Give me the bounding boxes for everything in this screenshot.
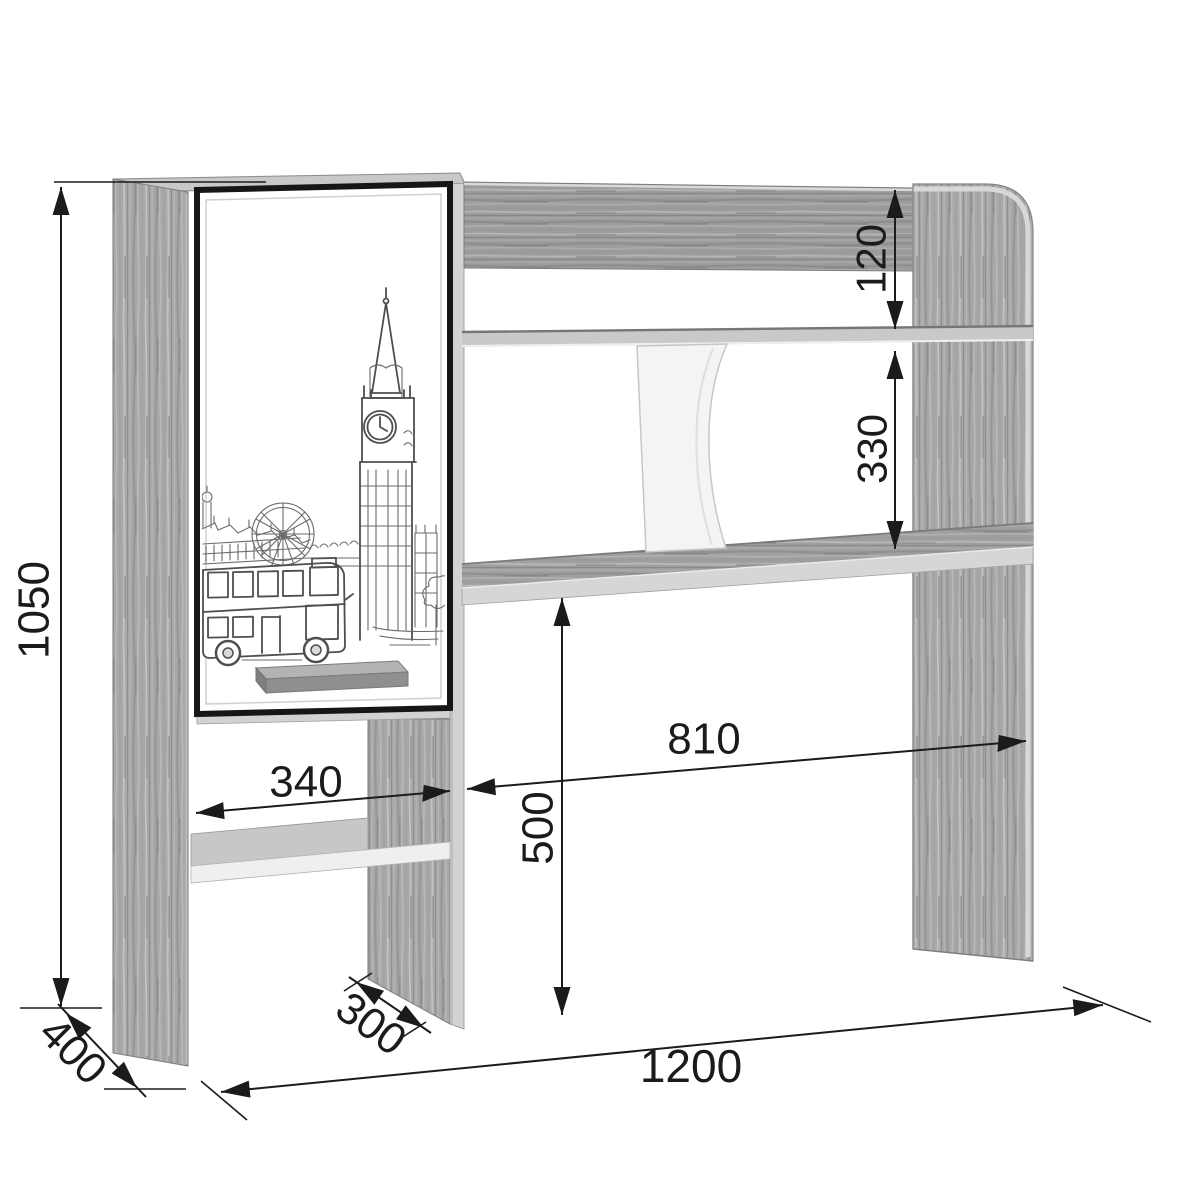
right-side-panel: [913, 184, 1033, 961]
cabinet-left-side-panel: [113, 179, 188, 1066]
double-decker-bus-sketch: [203, 558, 353, 665]
dim-label-120: 120: [848, 224, 895, 294]
curved-divider: [637, 344, 727, 552]
dimension-shelf-gap: 330: [849, 351, 904, 549]
dim-label-400: 400: [30, 1008, 117, 1095]
dim-label-340: 340: [269, 758, 342, 807]
cabinet-right-side-panel-inner-face: [368, 719, 450, 1024]
diagram-canvas: 1050 400 1200 340: [0, 0, 1200, 1200]
dim-label-500: 500: [514, 791, 563, 864]
dim-label-1200: 1200: [640, 1040, 742, 1092]
furniture-dimension-diagram: 1050 400 1200 340: [0, 0, 1200, 1200]
dimension-opening-height: 500: [514, 598, 571, 1015]
dim-label-330: 330: [849, 414, 896, 484]
dim-label-810: 810: [667, 715, 740, 764]
cabinet-door[interactable]: [197, 184, 456, 714]
dim-label-1050: 1050: [10, 561, 59, 659]
